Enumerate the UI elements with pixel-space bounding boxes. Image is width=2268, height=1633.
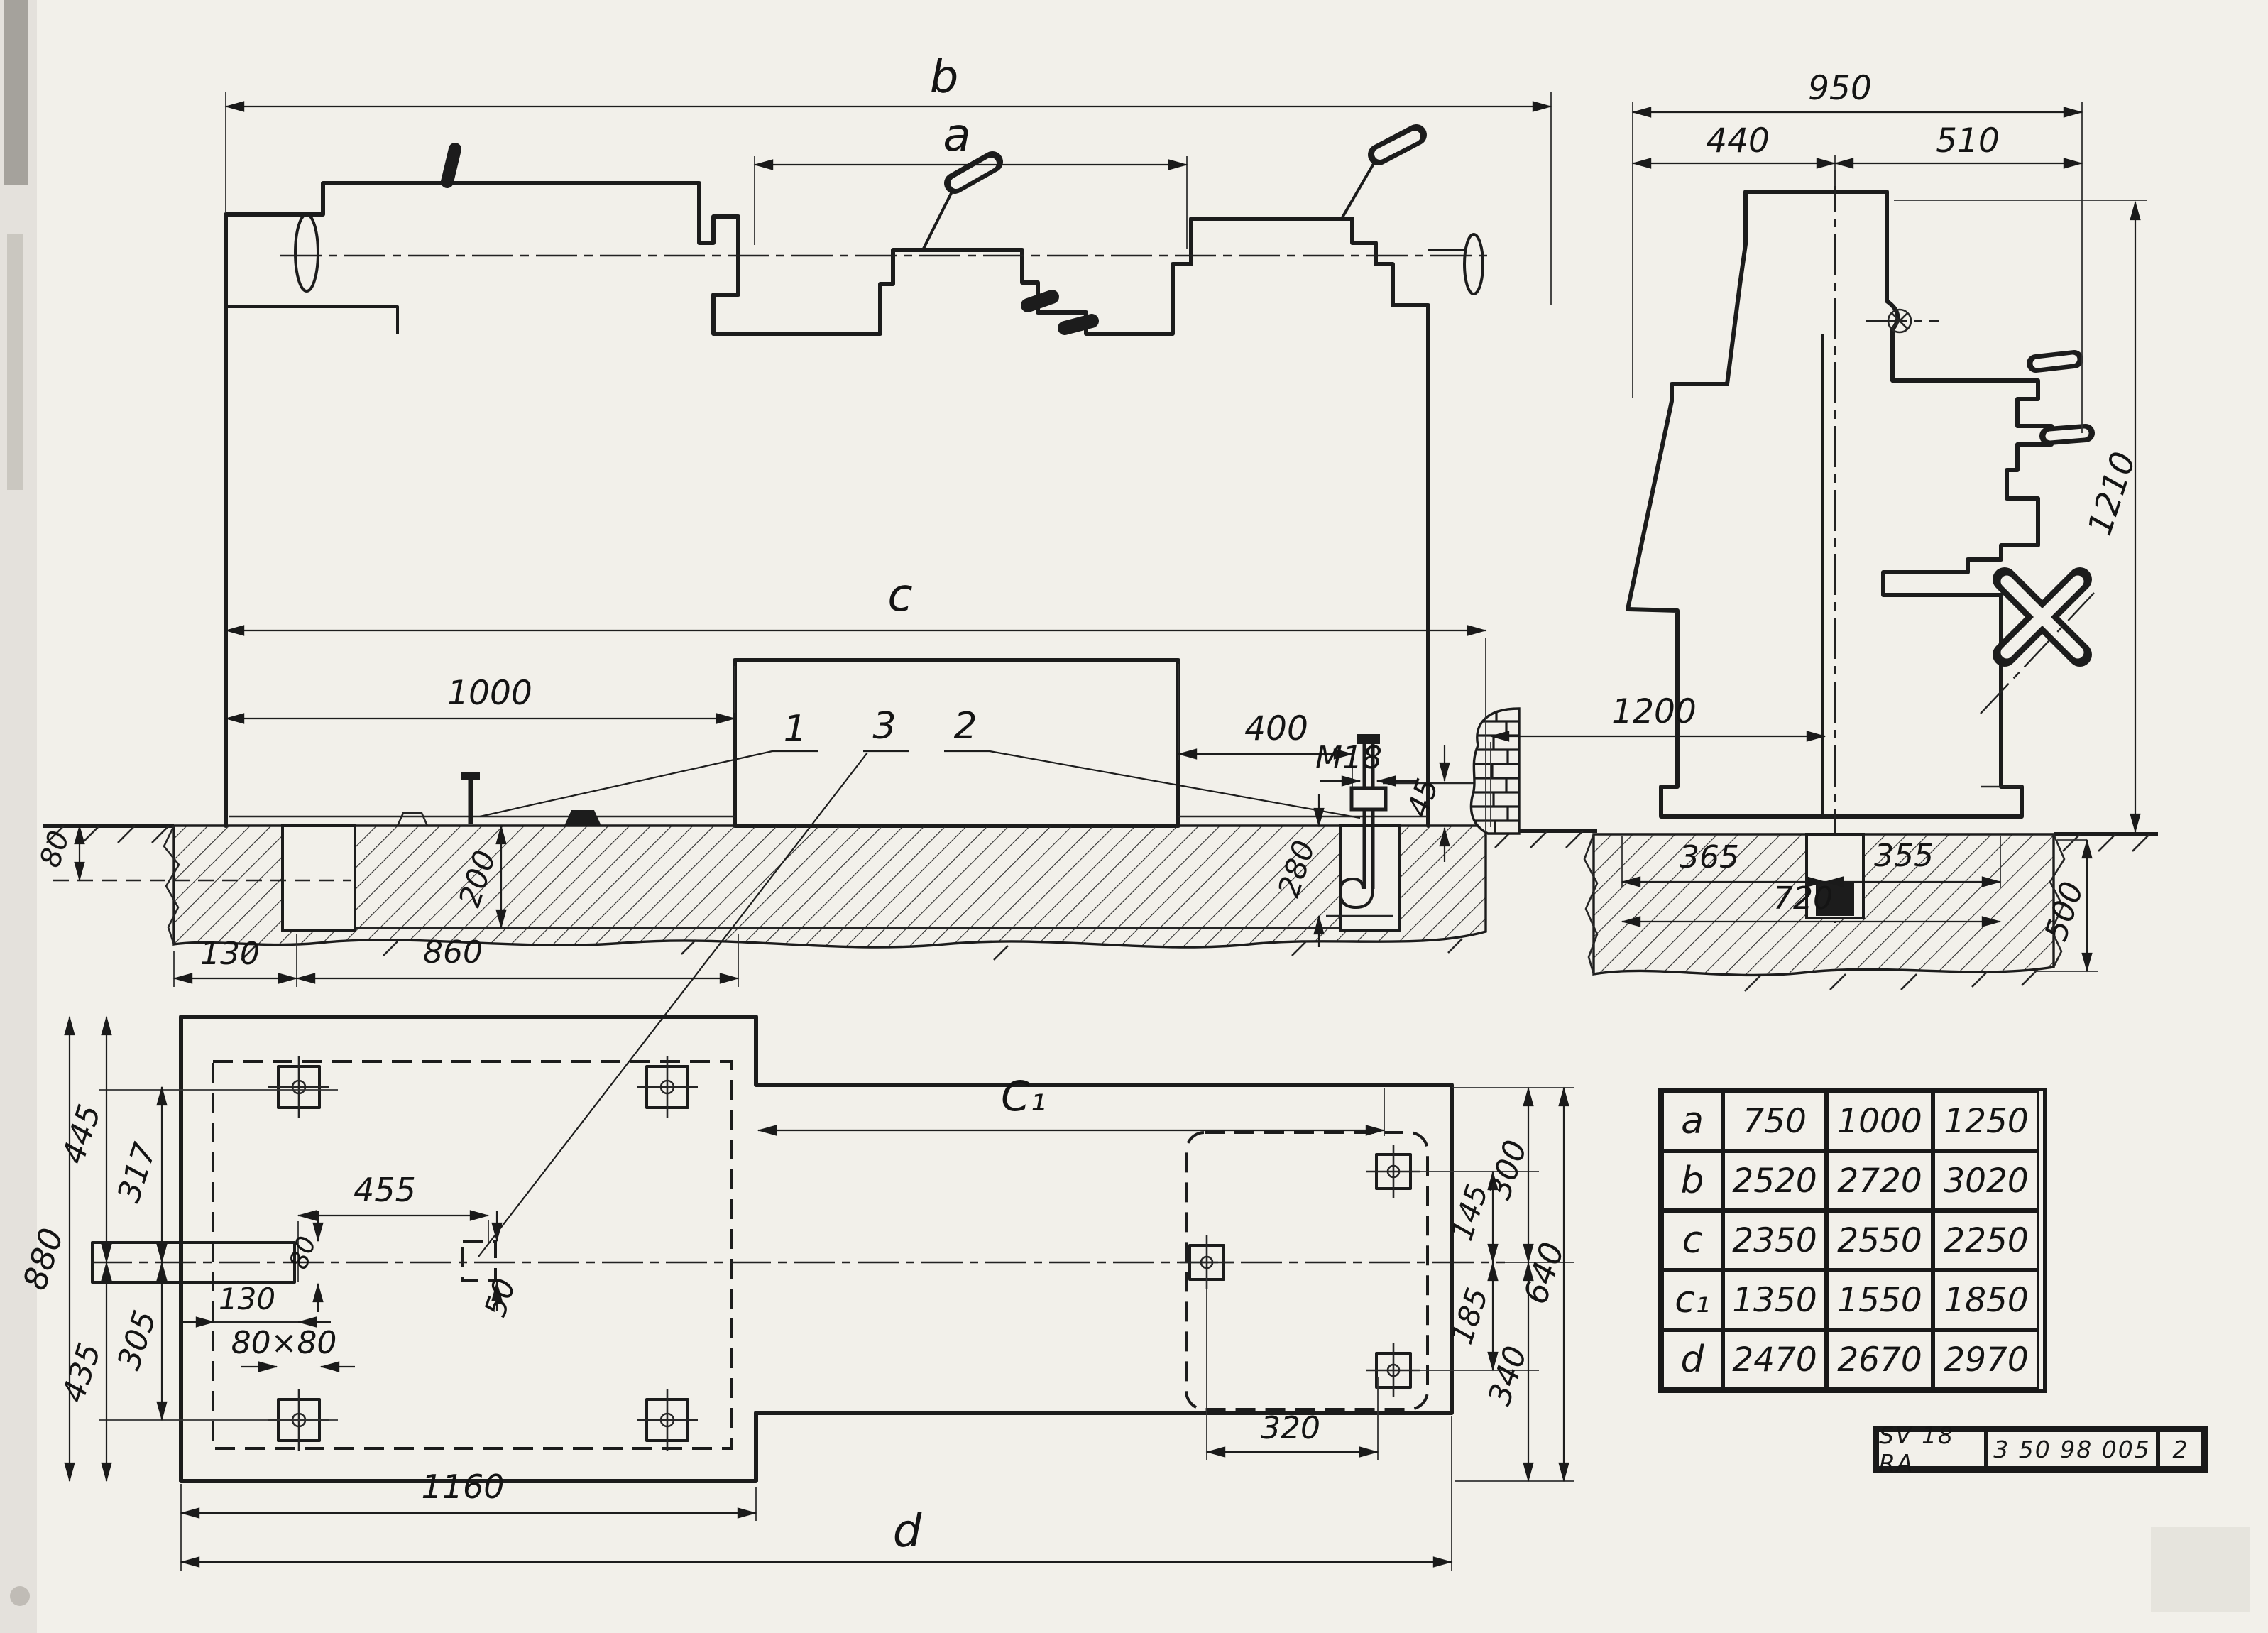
end-view-machine <box>1628 170 2094 923</box>
plan-anchor-hole <box>637 1056 698 1118</box>
handwheel-left-icon <box>295 214 318 291</box>
dim-label-plan-320: 320 <box>1261 1410 1320 1446</box>
dim-label-end-355: 355 <box>1874 838 1934 874</box>
dim-label-slab-80: 80 <box>34 827 76 872</box>
headstock-lever-icon <box>447 149 455 182</box>
table-value: 1000 <box>1826 1091 1933 1151</box>
dim-label-c: c <box>887 569 912 622</box>
dim-label-plan-80: 80 <box>284 1233 322 1272</box>
dim-label-hole-80x80: 80×80 <box>231 1325 337 1361</box>
star-handwheel-icon <box>1981 579 2094 714</box>
anchor-pocket-left <box>283 826 355 931</box>
dim-label-plan-130: 130 <box>219 1282 275 1316</box>
table-value: 2550 <box>1826 1211 1933 1270</box>
dim-label-b: b <box>930 51 959 104</box>
dim-label-end-365: 365 <box>1680 839 1739 875</box>
dim-label-d: d <box>893 1505 922 1558</box>
table-value: 3020 <box>1933 1151 2039 1211</box>
tailstock-handle-icon <box>1342 135 1416 219</box>
title-drawing-number: 3 50 98 005 <box>1986 1430 2158 1468</box>
parameter-table: a 750 1000 1250 b 2520 2720 3020 c 2350 … <box>1658 1088 2047 1393</box>
plan-anchor-hole <box>637 1389 698 1451</box>
leveling-pad-2 <box>398 813 427 826</box>
dim-label-len-400: 400 <box>1244 709 1308 748</box>
title-block: SV 18 RA 3 50 98 005 2 <box>1873 1426 2208 1473</box>
dim-label-plan-455: 455 <box>354 1171 416 1209</box>
dim-label-plan-305: 305 <box>111 1306 163 1375</box>
dim-label-2: 2 <box>953 705 977 748</box>
brick-wall-icon <box>1462 709 1523 834</box>
bed-foot-step <box>226 307 398 334</box>
plan-anchor-hole <box>1366 1145 1420 1198</box>
dim-label-plan-317: 317 <box>111 1139 163 1207</box>
dim-label-3: 3 <box>872 705 896 748</box>
dim-label-end-440: 440 <box>1706 121 1770 160</box>
dim-label-height-1210: 1210 <box>2081 447 2144 540</box>
table-value: 1250 <box>1933 1091 2039 1151</box>
table-value: 2520 <box>1723 1151 1826 1211</box>
carriage-handle-icon <box>923 162 992 250</box>
dim-label-plan-50: 50 <box>478 1274 522 1321</box>
dim-label-bolt-m18: M18 <box>1315 740 1382 776</box>
table-value: 2250 <box>1933 1211 2039 1270</box>
table-param: b <box>1662 1151 1723 1211</box>
table-param: a <box>1662 1091 1723 1151</box>
table-value: 2970 <box>1933 1330 2039 1389</box>
table-value: 2720 <box>1826 1151 1933 1211</box>
table-value: 1850 <box>1933 1270 2039 1330</box>
table-value: 1550 <box>1826 1270 1933 1330</box>
dim-label-end-950: 950 <box>1808 69 1872 108</box>
table-value: 2350 <box>1723 1211 1826 1270</box>
table-value: 1350 <box>1723 1270 1826 1330</box>
table-value: 750 <box>1723 1091 1826 1151</box>
plan-anchor-hole <box>268 1056 329 1118</box>
dim-label-plan-340: 340 <box>1481 1342 1534 1410</box>
dim-label-plan-445: 445 <box>55 1100 108 1169</box>
dim-label-1: 1 <box>783 708 806 750</box>
dim-label-len-860: 860 <box>423 934 483 971</box>
dim-label-end-720: 720 <box>1773 880 1833 917</box>
dim-label-len-1000: 1000 <box>447 674 532 713</box>
drawing-sheet: bac1000400M18452802008013086095044051012… <box>0 0 2268 1633</box>
dim-label-gap-1200: 1200 <box>1611 692 1697 731</box>
title-model: SV 18 RA <box>1877 1430 1986 1468</box>
table-value: 2470 <box>1723 1330 1826 1389</box>
dim-label-off-130: 130 <box>200 936 260 972</box>
plan-anchor-hole <box>1366 1343 1420 1397</box>
dim-label-plan-1160: 1160 <box>421 1468 504 1506</box>
handwheel-right-icon <box>1464 234 1483 294</box>
table-param: c₁ <box>1662 1270 1723 1330</box>
title-sheet-number: 2 <box>2158 1430 2203 1468</box>
dim-label-plan-435: 435 <box>55 1339 108 1407</box>
table-value: 2670 <box>1826 1330 1933 1389</box>
dim-label-c1: C₁ <box>1001 1072 1046 1120</box>
table-param: c <box>1662 1211 1723 1270</box>
leveling-pad-1 <box>564 810 601 826</box>
table-param: d <box>1662 1330 1723 1389</box>
dim-label-end-510: 510 <box>1936 121 2000 160</box>
dim-label-a: a <box>943 109 970 162</box>
